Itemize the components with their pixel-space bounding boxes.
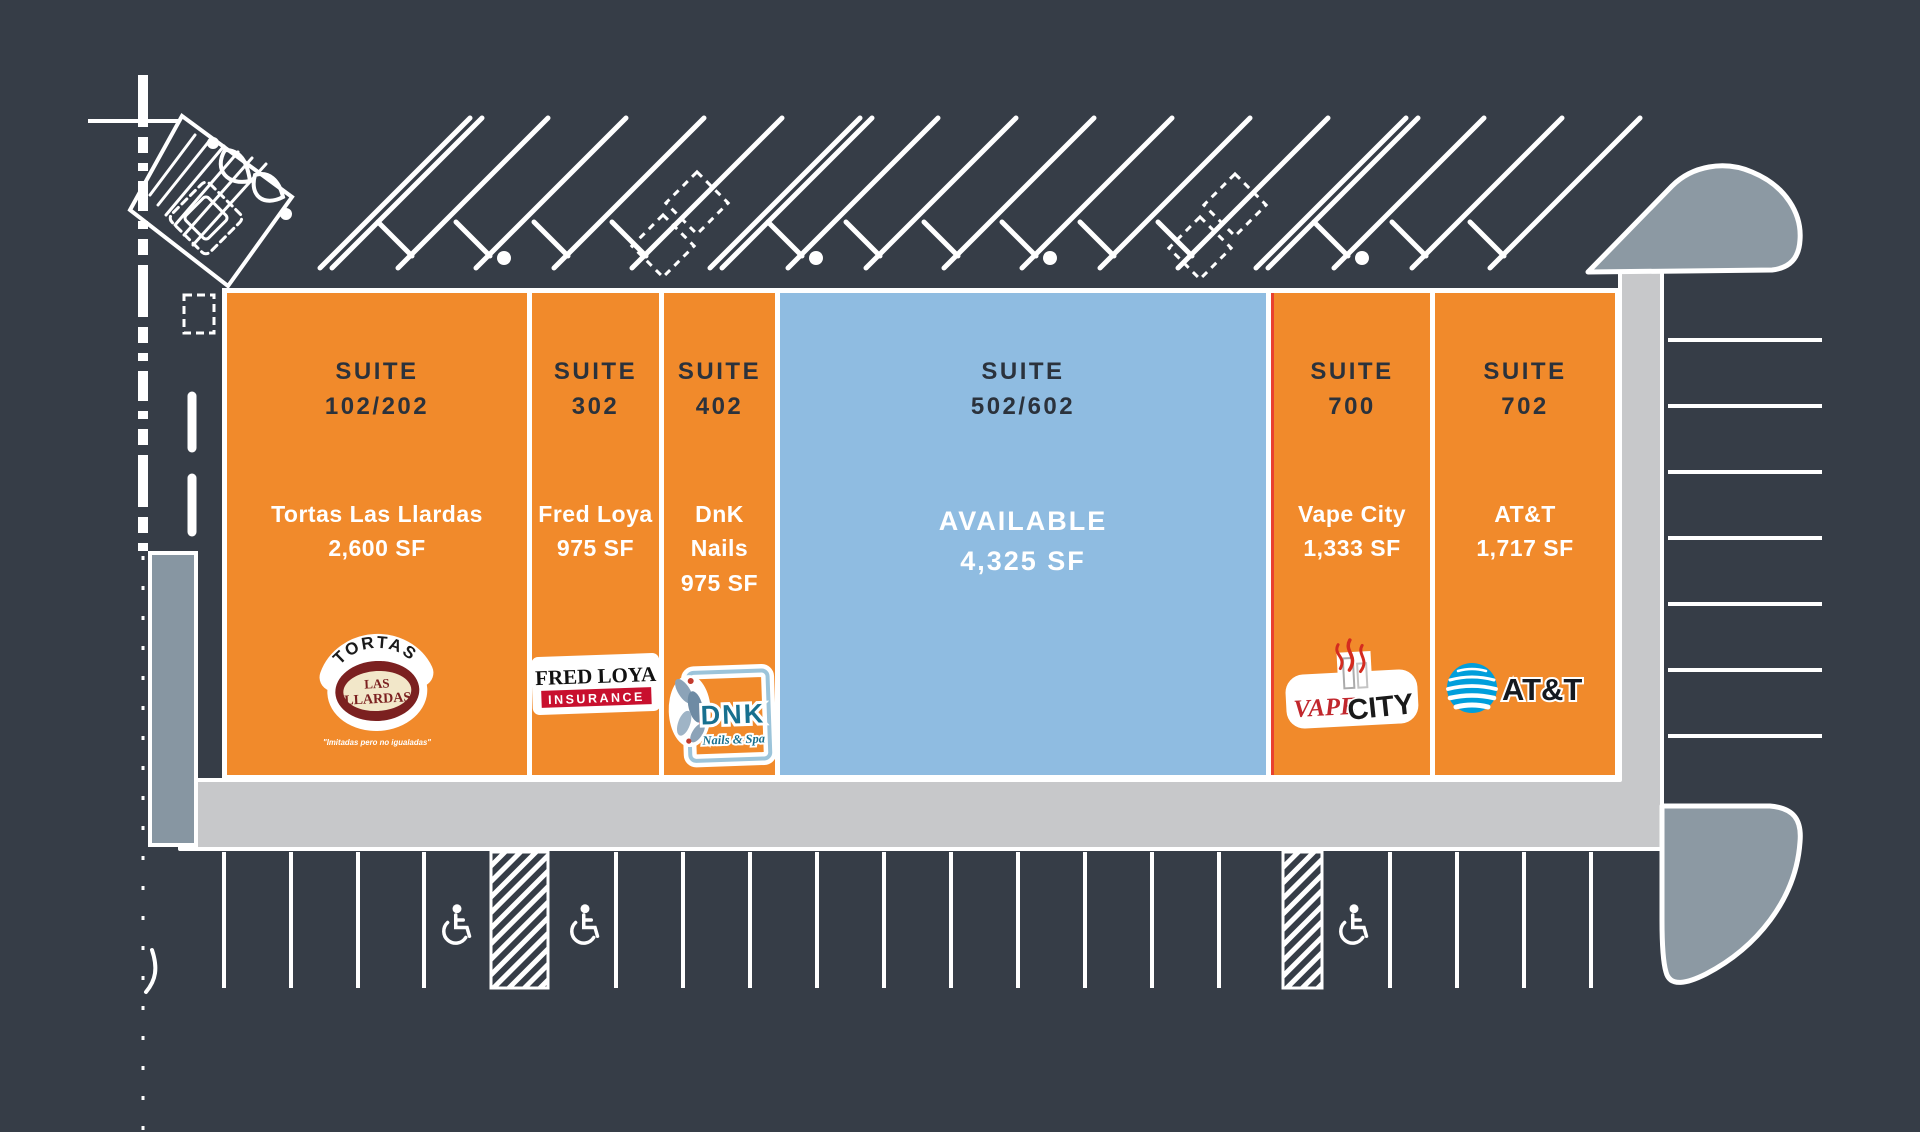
- fred-loya-name: FRED LOYA: [534, 661, 657, 689]
- suite-number: 702: [1483, 390, 1566, 425]
- bottom-parking-stripes: [224, 852, 1591, 988]
- suite-number-label: SUITE 302: [554, 355, 637, 425]
- suite-number-label: SUITE 502/602: [971, 355, 1075, 425]
- suite-number-label: SUITE 700: [1310, 355, 1393, 425]
- suite-102-202: SUITE 102/202 Tortas Las Llardas 2,600 S…: [227, 293, 527, 775]
- suite-word: SUITE: [1483, 355, 1566, 390]
- available-word: AVAILABLE: [939, 501, 1108, 542]
- suite-700: SUITE 700 Vape City 1,333 SF: [1271, 293, 1430, 775]
- tenant-name: Fred Loya: [538, 497, 652, 532]
- vape-city-logo: VAPE CITY: [1281, 624, 1423, 752]
- wheelchair-icon: [444, 904, 470, 943]
- tenant-area: 1,717 SF: [1476, 531, 1573, 566]
- dnk-sub: Nails & Spa: [701, 732, 765, 748]
- top-parking-wheelstops: [378, 222, 1504, 256]
- tenant-name: AT&T: [1476, 497, 1573, 532]
- tenant-label: Vape City 1,333 SF: [1298, 497, 1406, 566]
- suite-number: 302: [554, 390, 637, 425]
- suite-number: 102/202: [325, 390, 429, 425]
- tenant-area: 1,333 SF: [1298, 531, 1406, 566]
- tortas-las-llardas-logo: TORTAS LAS LLARDAS "Imitadas pero no igu…: [318, 624, 436, 752]
- top-parking-dots: [497, 251, 1369, 265]
- suite-number: 402: [678, 390, 761, 425]
- available-area: 4,325 SF: [939, 541, 1108, 582]
- tenant-area: 975 SF: [664, 566, 775, 601]
- corner-landscape-island: [130, 116, 292, 286]
- tenant-label: DnK Nails 975 SF: [664, 497, 775, 601]
- suite-302: SUITE 302 Fred Loya 975 SF FRED LOYA INS…: [532, 293, 659, 775]
- wheelchair-icon: [572, 904, 598, 943]
- suite-word: SUITE: [1310, 355, 1393, 390]
- tenant-name: Tortas Las Llardas: [271, 497, 483, 532]
- tenant-name: Vape City: [1298, 497, 1406, 532]
- tenant-area: 975 SF: [538, 531, 652, 566]
- suite-402: SUITE 402 DnK Nails 975 SF: [664, 293, 775, 775]
- suite-word: SUITE: [971, 355, 1075, 390]
- suite-702: SUITE 702 AT&T 1,717 SF AT&T: [1435, 293, 1615, 775]
- suite-word: SUITE: [554, 355, 637, 390]
- tenant-label: Tortas Las Llardas 2,600 SF: [271, 497, 483, 566]
- bottom-right-landscape-island: [1662, 806, 1800, 982]
- dashed-utility-pad: [184, 295, 214, 333]
- building-footprint: SUITE 102/202 Tortas Las Llardas 2,600 S…: [222, 288, 1620, 780]
- left-landscape-median: [150, 553, 196, 845]
- dnk-nails-logo: DNK Nails & Spa: [661, 658, 779, 778]
- top-parking-stripes: [320, 118, 1640, 268]
- suite-word: SUITE: [678, 355, 761, 390]
- fred-loya-logo: FRED LOYA INSURANCE: [530, 624, 662, 752]
- suite-number: 700: [1310, 390, 1393, 425]
- availability-label: AVAILABLE 4,325 SF: [939, 501, 1108, 582]
- handicap-access-aisle: [1283, 852, 1322, 988]
- dnk-name: DNK: [700, 699, 766, 731]
- top-right-landscape-island: [1588, 166, 1800, 272]
- suite-number-label: SUITE 402: [678, 355, 761, 425]
- tenant-label: AT&T 1,717 SF: [1476, 497, 1573, 566]
- tortas-las: LAS: [364, 675, 390, 691]
- suite-number-label: SUITE 702: [1483, 355, 1566, 425]
- tortas-tagline: "Imitadas pero no igualadas": [323, 737, 432, 747]
- right-parking-stripes: [1668, 340, 1822, 736]
- tenant-area: 2,600 SF: [271, 531, 483, 566]
- att-logo: AT&T: [1444, 624, 1606, 752]
- handicap-access-aisle: [491, 852, 548, 988]
- suite-number: 502/602: [971, 390, 1075, 425]
- tenant-name: DnK Nails: [664, 497, 775, 566]
- suite-502-602-available: SUITE 502/602 AVAILABLE 4,325 SF: [780, 293, 1266, 775]
- tenant-label: Fred Loya 975 SF: [538, 497, 652, 566]
- suite-word: SUITE: [325, 355, 429, 390]
- att-wordmark: AT&T: [1502, 672, 1582, 707]
- site-plan: SUITE 102/202 Tortas Las Llardas 2,600 S…: [0, 0, 1920, 1132]
- suite-number-label: SUITE 102/202: [325, 355, 429, 425]
- wheelchair-icon: [1341, 904, 1367, 943]
